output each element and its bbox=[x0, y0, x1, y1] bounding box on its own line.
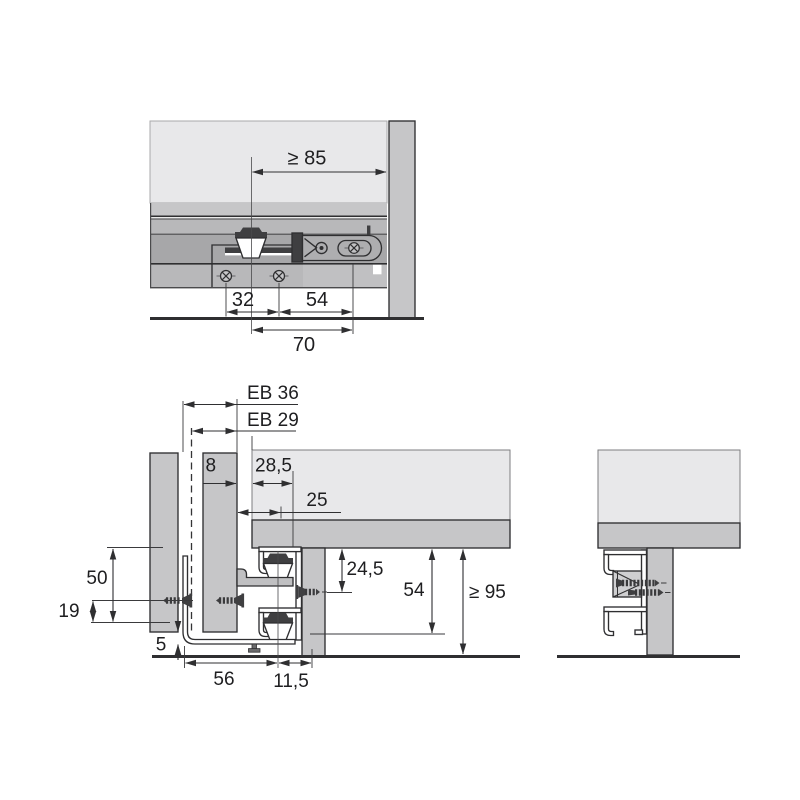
dim-label-19: 19 bbox=[58, 601, 79, 622]
drawing-page: ≥ 85 32 54 70 bbox=[0, 0, 800, 800]
dim-label-70: 70 bbox=[293, 334, 315, 356]
dim-eb29: EB 29 bbox=[193, 410, 299, 431]
dim-24-5: 24,5 bbox=[342, 550, 383, 592]
cabinet-side-panel bbox=[150, 453, 178, 632]
dim-label-min-95: ≥ 95 bbox=[469, 582, 506, 603]
dim-label-eb29: EB 29 bbox=[247, 410, 299, 431]
dim-70: 70 bbox=[253, 330, 353, 356]
dim-label-24-5: 24,5 bbox=[347, 559, 384, 580]
dim-label-8: 8 bbox=[206, 456, 217, 477]
dim-min-95: ≥ 95 bbox=[463, 550, 506, 655]
front-panel-post bbox=[302, 548, 325, 656]
front-panel-post-side bbox=[647, 548, 673, 655]
technical-drawing-canvas: ≥ 85 32 54 70 bbox=[0, 0, 800, 800]
dim-label-32: 32 bbox=[232, 289, 254, 311]
drawer-bottom-band bbox=[252, 520, 510, 548]
dim-label-eb36: EB 36 bbox=[247, 383, 299, 404]
drawer-bottom-band-side bbox=[598, 523, 740, 548]
dim-label-54: 54 bbox=[306, 289, 328, 311]
bracket-pin bbox=[249, 644, 261, 652]
dim-11-5: 11,5 bbox=[273, 663, 311, 692]
dim-50: 50 bbox=[86, 549, 113, 622]
cabinet-interior-panel bbox=[150, 121, 387, 203]
dim-label-28-5: 28,5 bbox=[255, 456, 292, 477]
dim-32: 32 bbox=[227, 289, 278, 312]
baseline bbox=[557, 655, 740, 658]
baseline bbox=[152, 655, 520, 658]
dim-label-54-section: 54 bbox=[403, 580, 425, 601]
rail-end-notch bbox=[373, 265, 382, 275]
dim-label-50: 50 bbox=[86, 568, 107, 589]
latch-block bbox=[292, 233, 303, 262]
slide-strip-mid bbox=[150, 220, 387, 234]
side-view bbox=[557, 450, 740, 658]
drawer-body-panel-side bbox=[598, 450, 740, 523]
dim-54-section: 54 bbox=[403, 550, 432, 634]
baseline bbox=[150, 317, 424, 320]
drawer-side-panel bbox=[203, 453, 237, 632]
cone-cap bbox=[240, 228, 262, 233]
slide-strip-upper bbox=[150, 203, 387, 216]
dim-label-11-5: 11,5 bbox=[273, 671, 309, 692]
top-view-drawer-slide: ≥ 85 32 54 70 bbox=[150, 121, 424, 356]
dim-eb36: EB 36 bbox=[184, 383, 299, 405]
bracket-top-hook bbox=[604, 555, 614, 575]
dim-label-5: 5 bbox=[156, 635, 167, 656]
dim-label-min-85: ≥ 85 bbox=[288, 148, 327, 170]
cone-plate bbox=[235, 232, 267, 238]
bracket-bottom-hook bbox=[604, 612, 614, 636]
dim-56: 56 bbox=[186, 663, 278, 690]
dim-label-25: 25 bbox=[306, 490, 327, 511]
section-view: EB 36 EB 29 8 28,5 25 24,5 bbox=[58, 383, 520, 692]
dim-54: 54 bbox=[280, 289, 352, 312]
dim-label-56: 56 bbox=[213, 669, 234, 690]
latch-plate bbox=[303, 236, 382, 261]
dim-19: 19 bbox=[58, 601, 93, 622]
cabinet-front-bar bbox=[389, 121, 415, 318]
